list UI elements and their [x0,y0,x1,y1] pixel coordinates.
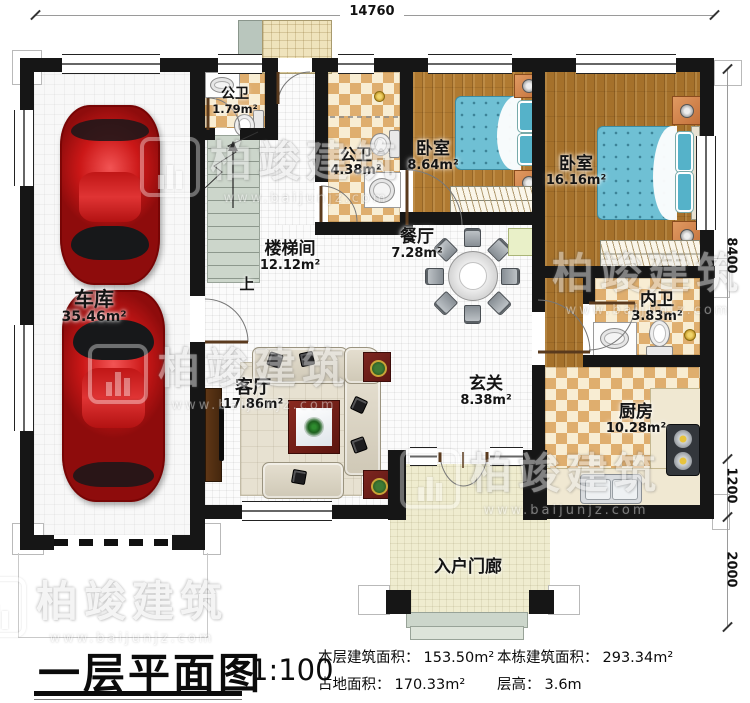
room-label-kitchen: 厨房 10.28m² [600,403,672,437]
stat-label: 本层建筑面积： [318,650,420,666]
room-area: 12.12m² [250,259,330,274]
watermark-logo-icon [0,577,26,637]
nightstand [672,96,701,125]
stat-footprint-area: 占地面积：170.33m² [318,673,465,694]
wall-ensuite-left [583,278,595,304]
dimension-right-top-value: 8400 [724,225,739,287]
dimension-right-mid-value: 1200 [724,455,739,517]
stat-label: 本栋建筑面积： [497,650,599,666]
room-label-bath2: 公卫 4.38m² [326,146,386,178]
room-name: 卧室 [404,140,462,159]
driveway-edge-right [207,553,208,638]
room-label-dining: 餐厅 7.28m² [386,228,448,262]
bed-small [455,96,521,170]
wall-porch-left [388,450,406,520]
window-bath1-top [218,54,262,74]
dimension-top-value: 14760 [340,4,404,19]
room-name: 卧室 [544,155,608,174]
room-area: 4.38m² [326,164,386,179]
car-roof [79,172,141,222]
room-label-stairwell: 楼梯间 12.12m² [250,240,330,274]
ensuite-floor-drain [684,329,696,341]
room-name: 厨房 [600,403,672,422]
car-top [60,105,160,285]
dining-table-center [459,262,487,290]
kitchen-sink [580,474,642,504]
dimension-right-bottom-value: 2000 [724,539,739,601]
vestibule-floor [545,278,583,367]
up-text: 上 [234,276,260,293]
potted-plant [305,418,323,436]
driveway-post-right [203,523,221,555]
room-area: 3.83m² [624,310,690,325]
floor-plan-canvas: 车库 35.46m² 公卫 1.79m² 公卫 4.38m² 卧室 8.64m²… [0,0,750,703]
car-roof [82,368,146,427]
ensuite-sink [600,328,629,349]
car-rear-window [71,119,149,141]
room-area: 8.64m² [404,159,462,174]
car-windshield [71,226,149,260]
window-foyer-left [410,447,437,466]
coffee-table [288,400,340,454]
room-label-bedroom1: 卧室 8.64m² [404,140,462,174]
burner [674,430,692,448]
throw-pillow [291,469,307,485]
window-bedroom2-top [576,54,676,74]
window-living-bottom [242,501,332,521]
room-name: 玄关 [452,375,520,394]
wall-kitchen-left [532,365,545,505]
watermark-brand: 柏竣建筑 [36,577,228,626]
tv-screen [219,406,224,461]
dining-chair [425,268,444,285]
room-area: 7.28m² [386,247,448,262]
stairs-up-label: 上 [234,276,260,293]
room-area: 16.16m² [544,174,608,189]
room-name: 入户门廊 [424,558,512,577]
room-name: 客厅 [220,378,286,398]
window-bedroom1-top [428,54,512,74]
room-area: 17.86m² [220,398,286,413]
title-underline-thin [34,699,242,700]
porch-pillar-right [529,590,554,614]
window-garage-top [62,54,160,74]
room-label-garage: 车库 35.46m² [48,288,140,326]
wardrobe-bedroom2 [600,240,702,267]
stat-total-area: 本栋建筑面积：293.34m² [497,646,673,667]
burner [674,452,692,470]
garage-door-dashed [54,539,172,546]
wall-bedroom1-bottom [400,212,545,225]
room-name: 公卫 [326,146,386,164]
wall-bath1-bottom-a [205,128,215,140]
stat-label: 占地面积： [318,677,391,693]
dining-chair [464,305,481,324]
room-label-foyer: 玄关 8.38m² [452,375,520,409]
stat-label: 层高： [497,677,541,693]
car-rear-window [73,462,153,487]
wall-garage-bottom-right [172,535,205,550]
dining-chair [501,268,520,285]
wall-garage-bottom-left [20,535,54,550]
bed-large [597,126,677,220]
door-gap-garage-living [190,296,205,342]
wall-ensuite-kitchen [583,355,714,367]
room-area: 8.38m² [452,394,520,409]
wall-bedroom-divider [532,72,545,312]
sofa-right [344,372,381,476]
bath2-sink [369,178,395,203]
room-name: 餐厅 [386,228,448,247]
dining-chair [464,228,481,247]
room-name: 楼梯间 [250,240,330,259]
room-name: 内卫 [624,291,690,310]
corridor-floor [278,72,315,232]
wardrobe-bedroom1 [450,186,540,214]
window-foyer-right [490,447,523,466]
door-gap-corridor-top [278,58,312,72]
room-label-porch: 入户门廊 [424,558,512,577]
window-bath2-top [338,54,374,74]
stat-value: 293.34m² [603,650,674,666]
sink-basin [585,479,611,500]
bath2-floor-drain [374,91,385,102]
stat-value: 3.6m [545,677,582,693]
exterior-stub-topright [714,60,742,86]
stat-value: 170.33m² [395,677,466,693]
pillow [676,172,693,212]
room-name: 车库 [48,288,140,310]
side-table-top [363,352,391,382]
bed-sheet [653,126,677,220]
room-area: 1.79m² [206,103,264,116]
driveway-edge-left [18,553,19,638]
wall-bath1-bottom-b [240,128,278,140]
porch-pillar-left [386,590,411,614]
pillow [676,132,693,172]
sink-basin [612,479,638,500]
room-label-bedroom2: 卧室 16.16m² [544,155,608,189]
wall-right [700,58,714,519]
porch-step-2 [410,626,524,640]
title-underline-thick [34,691,242,696]
throw-pillow [299,351,316,368]
window-garage-left-1 [14,110,34,186]
wall-bedroom2-ensuite [545,266,715,278]
room-name: 公卫 [206,87,264,103]
stat-storey-height: 层高：3.6m [497,673,582,694]
stat-floor-area: 本层建筑面积：153.50m² [318,646,494,667]
watermark: 柏竣建筑 www.baijunjz.com [0,568,228,646]
room-area: 10.28m² [600,422,672,437]
stat-value: 153.50m² [424,650,495,666]
wall-kitchen-bottom [532,505,714,519]
driveway-edge-bottom [18,637,208,638]
window-garage-left-2 [14,325,34,431]
room-label-bath1: 公卫 1.79m² [206,87,264,116]
room-label-ensuite: 内卫 3.83m² [624,291,690,325]
room-label-living: 客厅 17.86m² [220,378,286,413]
room-area: 35.46m² [48,310,140,326]
window-bedroom2-right [696,136,716,230]
